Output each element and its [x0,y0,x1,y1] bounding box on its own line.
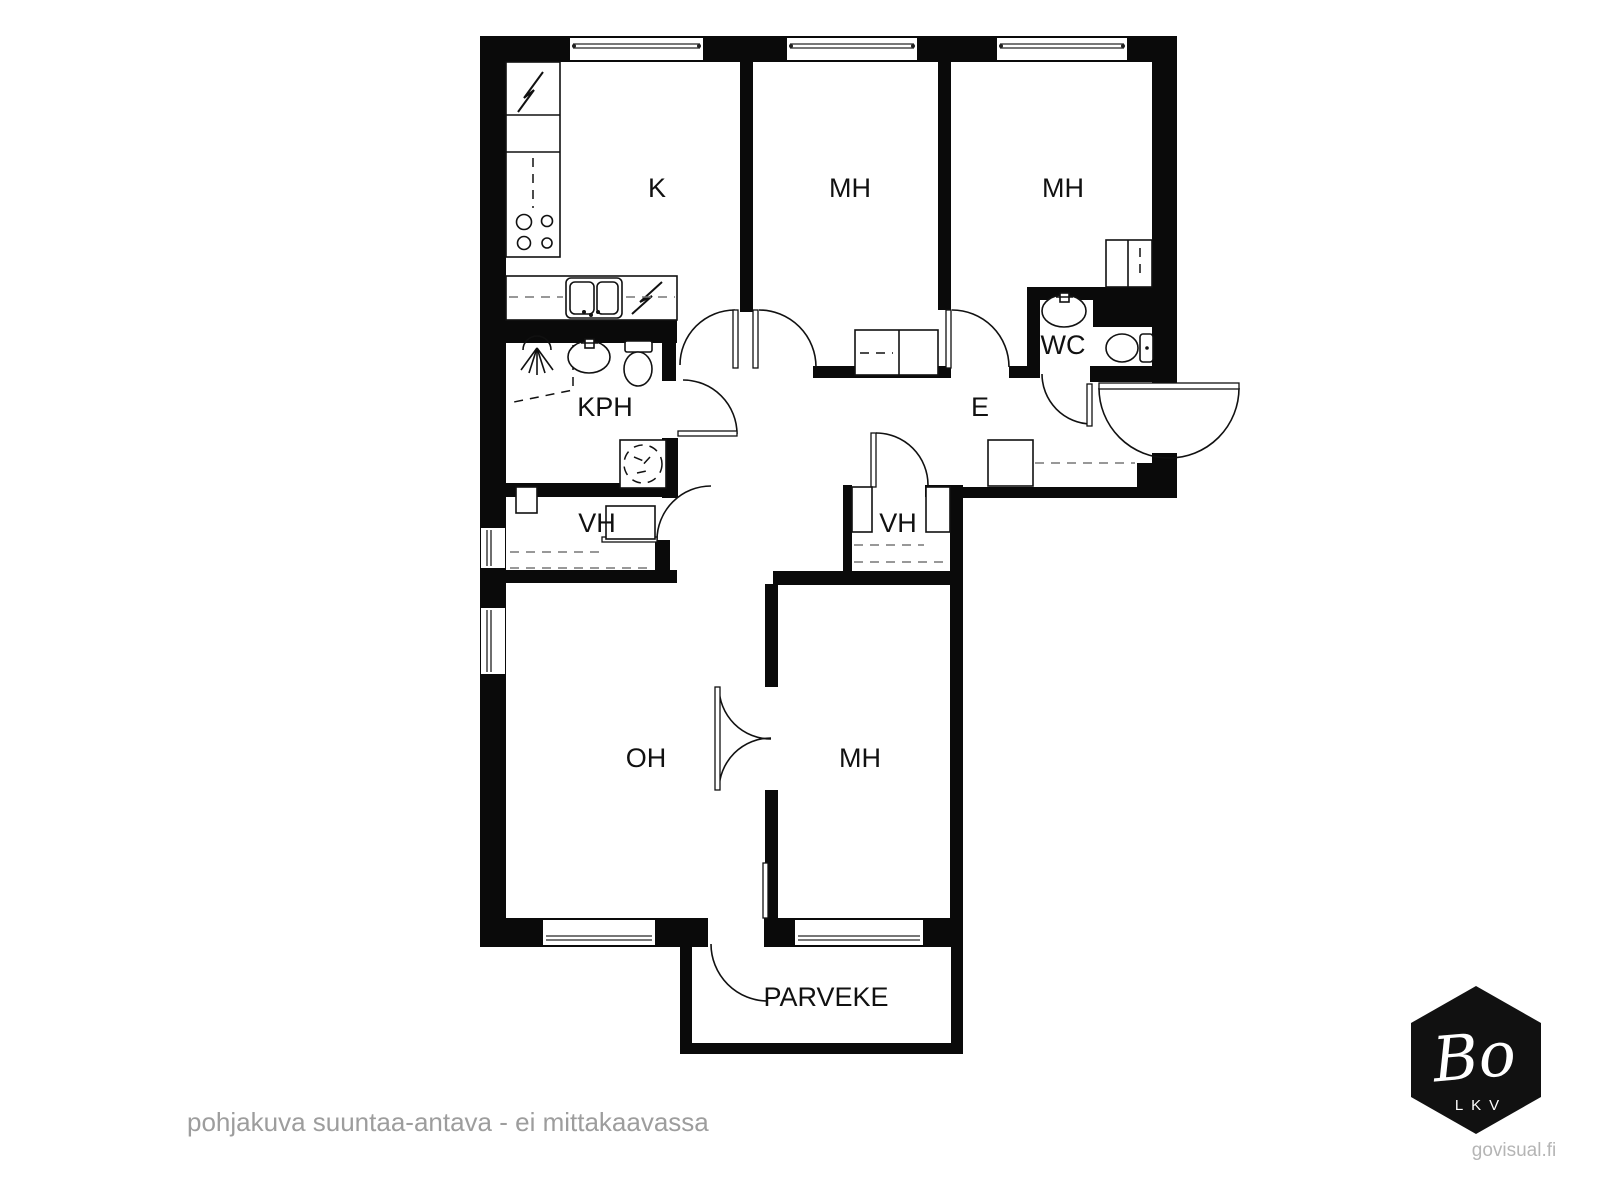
washbasin-icon [568,339,610,373]
door-wc [1042,374,1092,426]
electrical-bolt-icon [518,72,543,112]
window-slit-lower [481,608,505,674]
dishwasher-bolt-icon [626,282,675,314]
floorplan-page: K MH MH WC KPH E VH VH OH MH PARVEKE poh… [0,0,1600,1200]
wall-vh2-left [843,485,852,571]
door-mh1 [753,310,816,368]
window-mh3 [795,920,923,945]
door-mh2 [946,310,1009,368]
door-oh-mh3-double [715,687,771,790]
stove-icon [517,215,553,250]
wardrobe-mh1 [855,330,938,375]
wall-wc-block [1093,287,1152,327]
room-label-vh-right: VH [879,508,917,538]
wall-wc-left [1027,287,1040,378]
balcony-wall-bottom [680,1043,963,1054]
wall-right-top [1152,36,1177,387]
wall-mh3-top [773,571,963,585]
wardrobe-mh2 [1106,240,1152,287]
room-label-e: E [971,392,989,422]
room-label-wc: WC [1041,330,1086,360]
room-label-k: K [648,173,666,203]
wall-right-mid [950,485,963,920]
disclaimer-text: pohjakuva suuntaa-antava - ei mittakaava… [187,1107,709,1137]
footer: pohjakuva suuntaa-antava - ei mittakaava… [187,1107,1556,1161]
window-kitchen [570,38,703,60]
door-kph [678,380,737,436]
wall-entry-step [1137,463,1177,498]
window-mh2 [997,38,1127,60]
wall-mh1-mh2 [938,62,951,310]
wardrobe-entry [988,440,1135,486]
balcony-wall-left [680,947,692,1053]
logo-brand-text: Bo [1429,1017,1519,1097]
wall-left [480,36,506,947]
door-entrance [1099,383,1239,458]
room-label-parveke: PARVEKE [763,982,888,1012]
washing-machine-icon [620,440,666,488]
door-kitchen [680,310,738,368]
room-labels: K MH MH WC KPH E VH VH OH MH PARVEKE [577,173,1085,1012]
doors [602,310,1239,1001]
window-oh [543,920,655,945]
wall-wc-bottom [1090,366,1152,382]
room-label-mh2: MH [1042,173,1084,203]
floorplan-drawing: K MH MH WC KPH E VH VH OH MH PARVEKE poh… [0,0,1600,1200]
room-label-kph: KPH [577,392,633,422]
room-label-mh1: MH [829,173,871,203]
brand-logo: Bo LKV [1411,986,1541,1134]
room-label-mh3: MH [839,743,881,773]
wall-oh-top [488,570,677,583]
room-label-vh-left: VH [578,508,616,538]
window-mh1 [787,38,917,60]
wall-k-mh1 [740,62,753,312]
website-text: govisual.fi [1472,1140,1557,1161]
door-vh-right [871,433,928,487]
kitchen-sink-icon [566,278,622,318]
wc-toilet-icon [1106,334,1153,362]
balcony-wall-right [951,947,963,1053]
room-label-oh: OH [626,743,667,773]
wall-kph-right-upper [662,343,676,381]
window-slit-upper [481,528,505,568]
balcony-door-gap [708,917,764,948]
logo-subtitle-text: LKV [1455,1097,1507,1114]
wall-oh-mh3-upper [765,584,778,687]
toilet-icon [624,341,652,386]
